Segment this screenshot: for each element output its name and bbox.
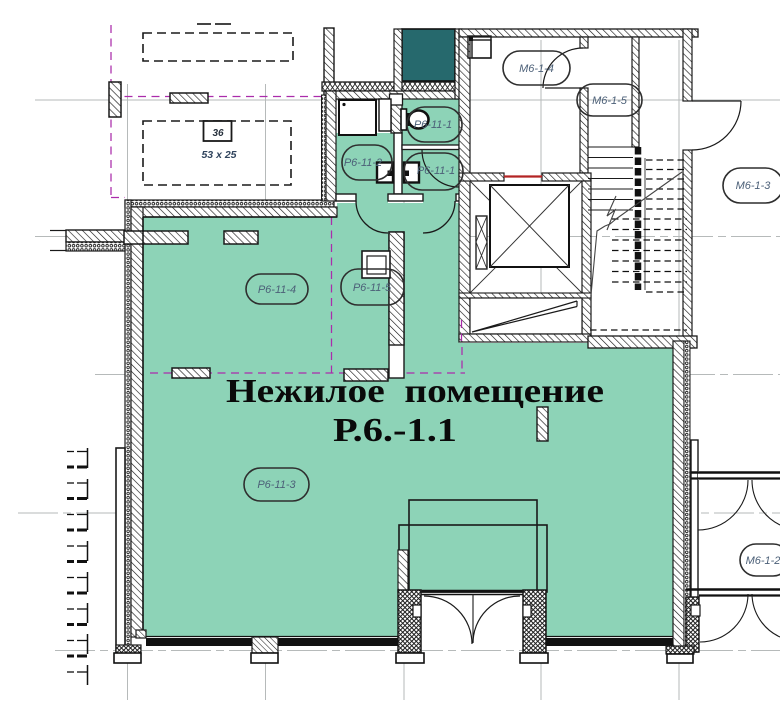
svg-text:М6-1-3: М6-1-3 xyxy=(736,180,772,192)
svg-text:Нежилое помещение: Нежилое помещение xyxy=(226,373,604,410)
svg-text:36: 36 xyxy=(212,128,224,139)
svg-text:Р6-11-5: Р6-11-5 xyxy=(353,282,392,294)
svg-text:М6-1-5: М6-1-5 xyxy=(592,95,628,107)
svg-text:Р.6.-1.1: Р.6.-1.1 xyxy=(333,412,457,449)
svg-text:53 x 25: 53 x 25 xyxy=(201,149,236,161)
svg-text:Р6-11-2: Р6-11-2 xyxy=(344,157,382,169)
svg-text:М6-1-4: М6-1-4 xyxy=(519,63,554,75)
svg-text:Р6-11-1: Р6-11-1 xyxy=(417,165,455,177)
svg-text:Р6-11-3: Р6-11-3 xyxy=(257,479,296,491)
svg-text:Р6-11-1: Р6-11-1 xyxy=(414,119,452,131)
svg-text:М6-1-2: М6-1-2 xyxy=(746,555,780,567)
svg-text:Р6-11-4: Р6-11-4 xyxy=(258,284,296,296)
